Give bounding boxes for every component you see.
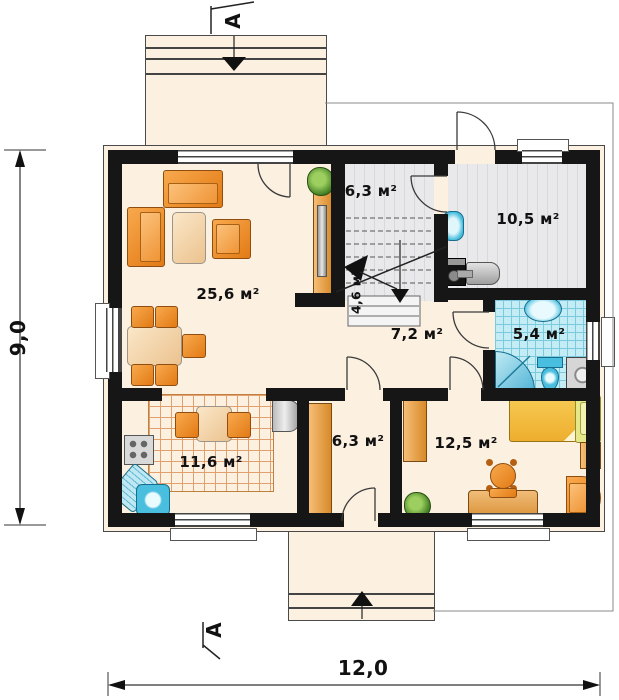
- wall-segment: [108, 372, 122, 527]
- window: [522, 150, 562, 164]
- room-label-bedroom: 12,5 м²: [434, 434, 497, 452]
- office-chair-wheels: [486, 459, 493, 466]
- tub-chair-seat: [569, 483, 587, 513]
- sofa-small: [127, 207, 165, 267]
- room-label-hallway: 7,2 м²: [391, 325, 443, 343]
- dining-chair: [155, 306, 178, 328]
- wall-segment: [266, 388, 345, 401]
- office-chair-backrest: [489, 488, 517, 498]
- wall-segment: [483, 350, 495, 388]
- room-label-living: 25,6 м²: [196, 285, 259, 303]
- section-marker-bottom: A: [202, 622, 226, 638]
- window: [472, 513, 543, 527]
- entrance-porch: [288, 527, 435, 621]
- window-sill: [467, 528, 550, 541]
- wall-segment: [481, 388, 586, 401]
- wall-segment: [297, 401, 309, 513]
- porch-step-line: [289, 607, 434, 609]
- dining-chair: [155, 364, 178, 386]
- wall-segment: [383, 388, 448, 401]
- wall-segment: [122, 388, 162, 401]
- terrace-step-line: [146, 58, 326, 60]
- room-label-bathroom: 5,4 м²: [513, 325, 565, 343]
- sofa-seat: [140, 212, 161, 262]
- room-label-vestibule: 6,3 м²: [332, 432, 384, 450]
- dining-chair: [131, 306, 154, 328]
- wall-segment: [108, 150, 122, 308]
- room-label-under-stair: 4,6 м²: [349, 270, 364, 314]
- terrace-glazed-door: [178, 150, 293, 164]
- dimension-width: 12,0: [338, 656, 389, 680]
- stove-icon: [124, 435, 154, 465]
- water-heater-icon: [466, 262, 500, 285]
- kitchen-sink: [136, 484, 170, 516]
- window: [106, 308, 122, 372]
- wall-segment: [378, 513, 472, 527]
- dining-chair: [182, 334, 206, 358]
- window: [175, 513, 250, 527]
- bed: [509, 397, 579, 442]
- room-label-utility: 10,5 м²: [496, 210, 559, 228]
- kitchen-chair: [175, 412, 199, 438]
- porch-step-line: [289, 593, 434, 595]
- wall-segment: [434, 164, 448, 176]
- fridge-icon: [272, 400, 300, 432]
- terrace-step-line: [146, 73, 326, 75]
- wall-segment: [250, 513, 344, 527]
- tv-cabinet: [313, 188, 333, 294]
- window: [586, 322, 600, 360]
- window-sill: [170, 528, 257, 541]
- armchair: [212, 219, 251, 259]
- heater-pipe: [457, 270, 473, 278]
- dimension-height: 9,0: [6, 320, 30, 356]
- wardrobe: [308, 403, 332, 517]
- window-sill: [601, 317, 615, 367]
- kitchen-chair: [227, 412, 251, 438]
- sofa-large: [163, 170, 223, 208]
- wall-segment: [390, 401, 402, 513]
- room-label-stair-hall: 6,3 м²: [345, 182, 397, 200]
- wall-segment: [495, 150, 522, 164]
- dining-table: [127, 326, 182, 366]
- wall-segment: [331, 164, 345, 307]
- wardrobe: [403, 398, 427, 462]
- section-marker-top: A: [221, 13, 245, 29]
- wall-segment: [293, 150, 455, 164]
- tv-icon: [317, 205, 327, 277]
- office-chair: [490, 463, 516, 489]
- wall-segment: [434, 288, 600, 300]
- wall-segment: [586, 360, 600, 527]
- coffee-table: [172, 212, 206, 264]
- sofa-seat: [168, 183, 218, 204]
- wall-segment: [295, 293, 345, 307]
- wall-segment: [483, 300, 495, 312]
- terrace: [145, 35, 327, 151]
- floor-plan: 25,6 м² 6,3 м² 10,5 м² 4,6 м² 7,2 м² 5,4…: [0, 0, 619, 700]
- armchair-seat: [216, 224, 240, 254]
- terrace-step-line: [146, 47, 326, 49]
- dining-chair: [131, 364, 154, 386]
- room-label-kitchen: 11,6 м²: [179, 453, 242, 471]
